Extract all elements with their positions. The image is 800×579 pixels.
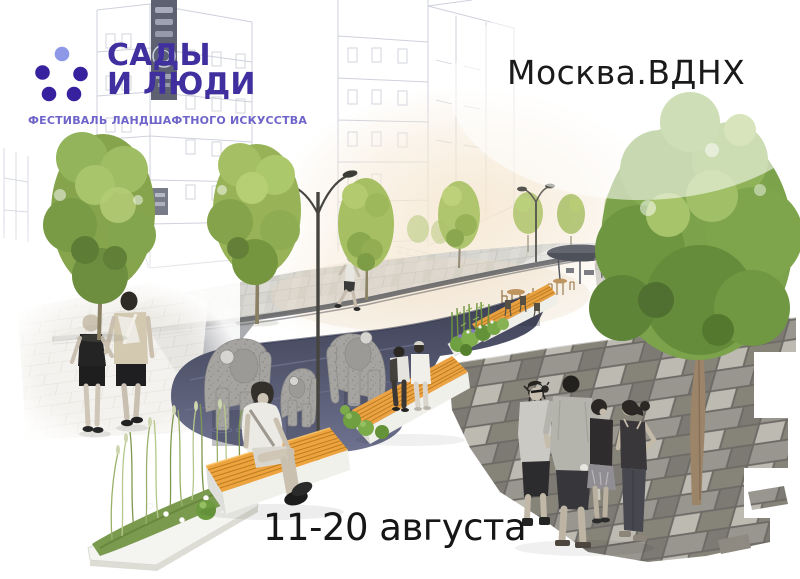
logo-subtitle: ФЕСТИВАЛЬ ЛАНДШАФТНОГО ИСКУССТВА [28, 114, 307, 127]
logo-mark [30, 44, 94, 106]
chinese-sign [151, 0, 177, 215]
location-text: Москва.ВДНХ [507, 53, 745, 92]
logo-dots-icon [30, 44, 94, 106]
dates-text: 11-20 августа [263, 506, 526, 549]
logo-title: САДЫ И ЛЮДИ [107, 41, 256, 99]
group-of-people [515, 376, 655, 557]
festival-poster: САДЫ И ЛЮДИ ФЕСТИВАЛЬ ЛАНДШАФТНОГО ИСКУС… [0, 0, 800, 579]
